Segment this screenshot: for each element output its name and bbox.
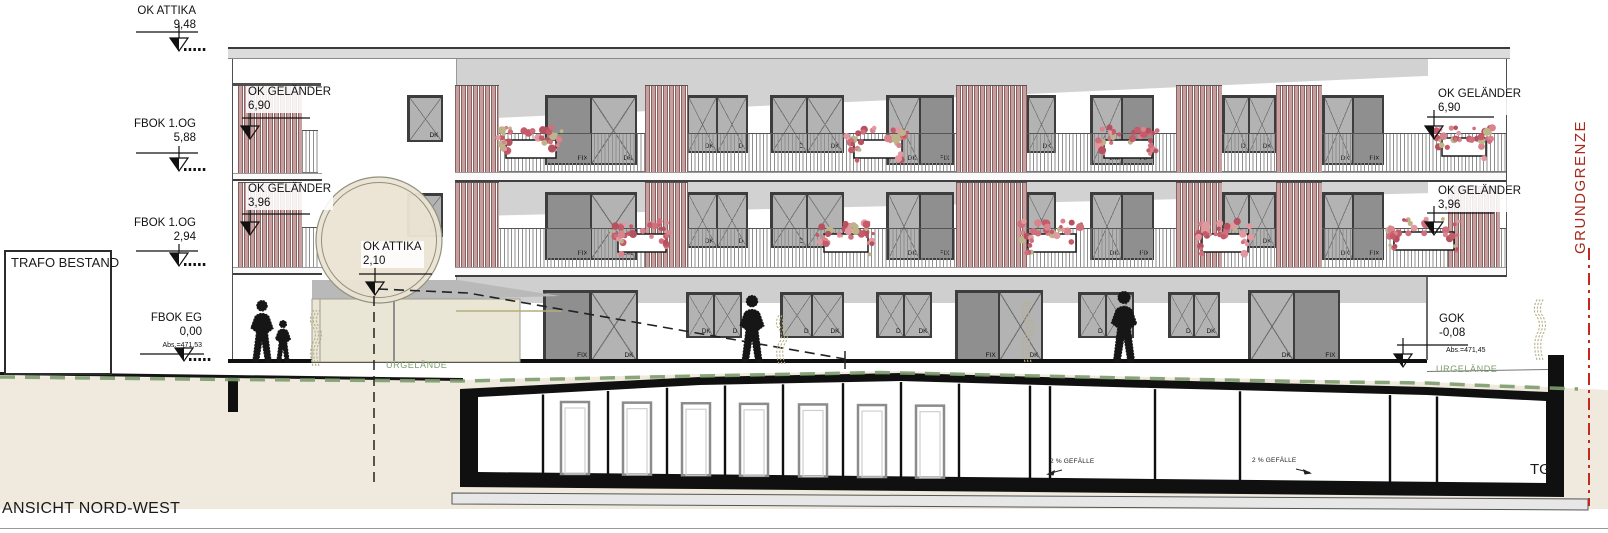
shrub xyxy=(1022,302,1033,362)
gefaelle-arrowhead-right xyxy=(1303,469,1312,475)
annotation-layer xyxy=(0,0,1608,533)
right-terrain-edge xyxy=(1427,370,1548,372)
gefaelle-arrowhead-left xyxy=(1046,470,1055,476)
urgelaende-dashed-line xyxy=(0,373,1578,390)
person-silhouette xyxy=(275,321,290,363)
shrub xyxy=(1534,298,1545,360)
shrub xyxy=(776,314,787,364)
person-silhouette xyxy=(251,301,273,363)
tree-canopy xyxy=(316,177,442,303)
person-silhouette xyxy=(740,296,764,363)
entrance-structure xyxy=(312,299,520,362)
elevation-drawing: FIXDKDKDDDKDKFIXDDKDKFIXDDKDKFIXFIXDKDKD… xyxy=(0,0,1608,533)
person-silhouette xyxy=(1111,292,1137,363)
